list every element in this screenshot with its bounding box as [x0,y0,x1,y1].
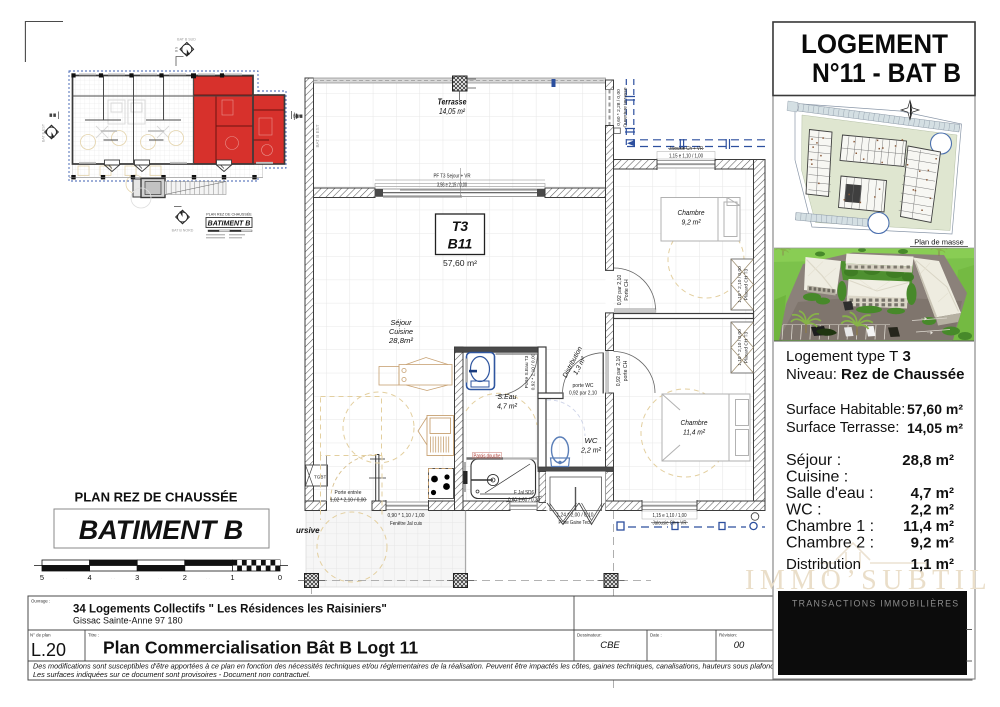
svg-text:Séjour :: Séjour : [786,452,841,469]
svg-text:0,92 par 2,10: 0,92 par 2,10 [617,275,623,306]
svg-text:14,05 m²: 14,05 m² [907,420,963,436]
svg-text:B S: B S [175,47,179,52]
svg-text:Plan de masse: Plan de masse [914,238,964,247]
svg-text:CBE: CBE [600,640,620,651]
svg-text:F Jal SD6: F Jal SD6 [514,490,534,496]
svg-text:Titre :: Titre : [88,633,99,638]
svg-text:0,90 * 1,10 / 1,00: 0,90 * 1,10 / 1,00 [388,513,425,519]
svg-text:WC :: WC : [786,502,822,519]
svg-text:ursive: ursive [296,526,320,535]
svg-text:0,60 * 2,28 / 0,00: 0,60 * 2,28 / 0,00 [616,89,622,126]
svg-text:00: 00 [734,640,745,651]
svg-text:Placard CH T3: Placard CH T3 [744,331,750,363]
svg-text:28,8 m²: 28,8 m² [902,452,954,469]
svg-text:Fenêtre Jal cuis: Fenêtre Jal cuis [390,521,422,527]
svg-text:N° de plan: N° de plan [30,633,51,638]
svg-text:0: 0 [278,573,282,582]
svg-text:9,2 m²: 9,2 m² [682,218,701,227]
svg-text:Porte entrée: Porte entrée [335,490,362,496]
svg-text:1,02 * 2,10 / 0,00: 1,02 * 2,10 / 0,00 [330,498,366,504]
svg-text:Porte CH: Porte CH [624,279,630,301]
svg-text:Jalousie Ch + VR: Jalousie Ch + VR [669,146,703,152]
svg-text:4,7 m²: 4,7 m² [911,485,954,502]
svg-text:Niveau: Rez de Chaussée: Niveau: Rez de Chaussée [786,366,964,383]
svg-text:· ·: · · [63,576,67,581]
svg-text:TRANSACTIONS IMMOBILIÈRES: TRANSACTIONS IMMOBILIÈRES [792,599,959,609]
svg-text:Ouvrage :: Ouvrage : [31,599,50,604]
svg-text:0,92 * 2,10 / 0,00: 0,92 * 2,10 / 0,00 [531,353,537,390]
svg-text:Séjour: Séjour [391,318,412,327]
svg-text:1: 1 [230,573,234,582]
svg-text:1,24 * 2,00 / 0,10: 1,24 * 2,00 / 0,10 [557,513,594,519]
svg-text:Salle d'eau :: Salle d'eau : [786,485,874,502]
svg-text:BAT B EST: BAT B EST [42,123,46,142]
svg-text:Parois douche: Parois douche [474,454,501,460]
svg-text:9,2 m²: 9,2 m² [911,535,954,552]
svg-text:L.20: L.20 [31,640,66,660]
svg-text:28,8m²: 28,8m² [388,336,413,345]
svg-text:Date :: Date : [650,633,662,638]
svg-text:· ·: · · [206,576,210,581]
svg-text:Logement type T 3: Logement type T 3 [786,348,911,365]
svg-text:0,92 par 2,10: 0,92 par 2,10 [616,356,622,387]
svg-text:Distribution: Distribution [786,556,861,573]
svg-text:BATIMENT B: BATIMENT B [208,221,251,228]
svg-text:Chambre: Chambre [678,208,705,217]
svg-text:1,1 m²: 1,1 m² [911,556,954,573]
svg-text:Terrasse: Terrasse [438,97,467,107]
svg-text:BAT B EST: BAT B EST [315,124,320,147]
svg-text:Cuisine :: Cuisine : [786,469,848,486]
svg-text:WC: WC [585,436,599,445]
svg-text:0,60 1,60 / 0,30: 0,60 1,60 / 0,30 [508,498,540,504]
svg-text:LOGEMENT: LOGEMENT [801,29,948,59]
svg-text:BAT B SUD: BAT B SUD [177,38,196,42]
svg-text:PF T3 Sejour + VR: PF T3 Sejour + VR [434,174,471,180]
svg-text:1,15 е 1,10 / 1,00: 1,15 е 1,10 / 1,00 [653,513,687,519]
svg-text:porte CH: porte CH [623,360,629,381]
svg-text:B11: B11 [448,236,473,252]
svg-text:57,60 m²: 57,60 m² [907,401,963,417]
svg-text:2,2 m²: 2,2 m² [911,502,954,519]
svg-text:porte WC: porte WC [573,383,594,389]
svg-text:14,05 m²: 14,05 m² [439,107,465,116]
svg-text:1,15 е 1,10 / 1,00: 1,15 е 1,10 / 1,00 [669,154,703,160]
svg-text:· ·: · · [158,576,162,581]
svg-text:2: 2 [183,573,187,582]
svg-text:3,56 е 2,15 / 0,00: 3,56 е 2,15 / 0,00 [437,183,467,189]
svg-text:11,4 m²: 11,4 m² [683,428,705,437]
svg-text:Chambre: Chambre [681,418,708,427]
svg-text:Porte Gaine Tech: Porte Gaine Tech [559,520,592,526]
svg-text:Porte S.Eau T3: Porte S.Eau T3 [524,355,530,388]
svg-text:11,4 m²: 11,4 m² [903,518,954,535]
svg-text:Gissac Sainte-Anne 97 180: Gissac Sainte-Anne 97 180 [73,616,183,626]
svg-text:1,10 * 2,10 / 0,00: 1,10 * 2,10 / 0,00 [737,266,743,303]
svg-text:Surface Terrasse:: Surface Terrasse: [786,420,899,436]
svg-text:PLAN REZ DE CHAUSSÉE: PLAN REZ DE CHAUSSÉE [75,490,238,505]
svg-text:57,60 m²: 57,60 m² [443,259,477,268]
svg-text:Dessinateur:: Dessinateur: [577,633,602,638]
svg-text:Plan Commercialisation Bât B L: Plan Commercialisation Bât B Logt 11 [103,638,418,658]
svg-text:Surface Habitable:: Surface Habitable: [786,402,905,418]
svg-text:Chambre 1 :: Chambre 1 : [786,518,874,535]
svg-text:4: 4 [88,573,92,582]
svg-text:S.Eau: S.Eau [498,392,518,401]
svg-text:Les surfaces indiquées sur ce: Les surfaces indiquées sur ce document s… [33,670,310,679]
svg-text:3: 3 [135,573,139,582]
svg-text:Révision:: Révision: [719,633,737,638]
svg-text:T3: T3 [452,218,469,234]
svg-text:5: 5 [40,573,44,582]
svg-text:Chambre 2 :: Chambre 2 : [786,535,874,552]
svg-text:4,7 m²: 4,7 m² [497,402,517,411]
svg-text:2,2 m²: 2,2 m² [580,446,601,455]
svg-text:· ·: · · [111,576,115,581]
svg-text:N°11 - BAT B: N°11 - BAT B [812,58,961,88]
svg-text:Placard CH T3: Placard CH T3 [744,268,750,300]
svg-text:BAT B NORD: BAT B NORD [172,229,194,233]
svg-text:Cuisine: Cuisine [389,327,413,336]
svg-text:BATIMENT B: BATIMENT B [79,515,243,545]
svg-text:PLAN REZ DE CHAUSSÉE: PLAN REZ DE CHAUSSÉE [206,212,252,217]
svg-text:1,10 * 2,10 / 0,00: 1,10 * 2,10 / 0,00 [737,329,743,366]
svg-text:Ouverture terrasse: Ouverture terrasse [623,87,629,127]
svg-text:0,92 par 2,10: 0,92 par 2,10 [569,391,597,397]
svg-text:Jalousie Ch + VR: Jalousie Ch + VR [653,521,687,527]
svg-text:34 Logements Collectifs " Les: 34 Logements Collectifs " Les Résidences… [73,604,387,616]
